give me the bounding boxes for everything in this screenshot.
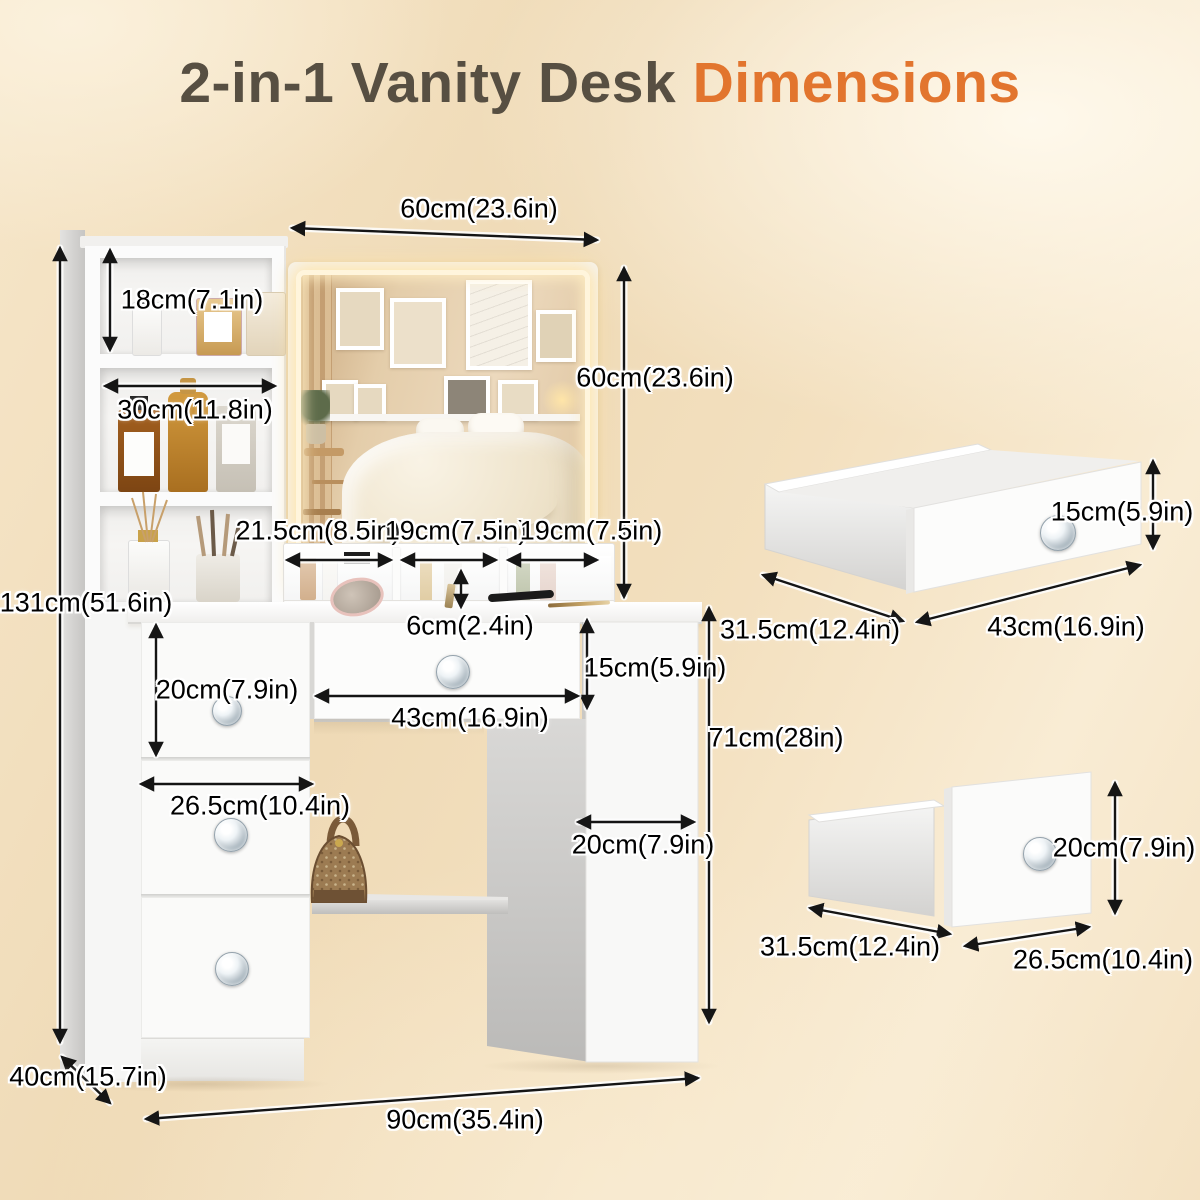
dim-shelf-width: 30cm(11.8in) bbox=[117, 395, 273, 426]
dim-organizer-middle: 19cm(7.5in) bbox=[385, 516, 528, 547]
dim-drawer-large-height: 15cm(5.9in) bbox=[1051, 497, 1194, 528]
dim-top-shelf-height: 18cm(7.1in) bbox=[121, 285, 264, 316]
dim-desk-height: 71cm(28in) bbox=[708, 723, 843, 754]
dim-mirror-width: 60cm(23.6in) bbox=[400, 194, 558, 225]
dim-center-drawer-height: 15cm(5.9in) bbox=[584, 653, 727, 684]
dim-drawer-small-height: 20cm(7.9in) bbox=[1053, 833, 1196, 864]
dim-organizer-right: 19cm(7.5in) bbox=[520, 516, 663, 547]
dim-drawer-large-depth: 31.5cm(12.4in) bbox=[720, 615, 900, 646]
dim-drawer-small-depth: 31.5cm(12.4in) bbox=[760, 932, 940, 963]
dim-top-drawer-height: 20cm(7.9in) bbox=[156, 675, 299, 706]
pedestal-side-face bbox=[487, 719, 590, 1062]
left-drawer-3-knob bbox=[215, 952, 249, 986]
dim-overall-width: 90cm(35.4in) bbox=[386, 1105, 544, 1136]
dim-organizer-left: 21.5cm(8.5in) bbox=[235, 516, 400, 547]
drawer-small-front-edge bbox=[944, 787, 952, 927]
dim-center-drawer-width: 43cm(16.9in) bbox=[391, 703, 549, 734]
handbag-trim bbox=[313, 890, 365, 902]
vanity-dimensions-diagram: 2-in-1 Vanity Desk Dimensions bbox=[0, 0, 1200, 1200]
dim-organizer-depth: 6cm(2.4in) bbox=[406, 611, 534, 642]
dim-drawer-small-width: 26.5cm(10.4in) bbox=[1013, 945, 1193, 976]
dim-pedestal-width: 20cm(7.9in) bbox=[572, 830, 715, 861]
dim-left-drawer-width: 26.5cm(10.4in) bbox=[170, 791, 350, 822]
makeup-brushes bbox=[198, 510, 240, 556]
dim-drawer-large-width: 43cm(16.9in) bbox=[987, 612, 1145, 643]
furniture-shapes-layer bbox=[0, 0, 1200, 1200]
center-drawer-knob bbox=[436, 655, 470, 689]
left-drawer-2-knob bbox=[214, 818, 248, 852]
drawer-large-front-edge bbox=[906, 508, 914, 594]
diffuser-reeds bbox=[132, 492, 167, 542]
dim-overall-height: 131cm(51.6in) bbox=[0, 588, 172, 619]
handbag-clasp bbox=[335, 839, 343, 847]
dim-overall-depth: 40cm(15.7in) bbox=[9, 1062, 167, 1093]
dim-mirror-height: 60cm(23.6in) bbox=[576, 363, 734, 394]
